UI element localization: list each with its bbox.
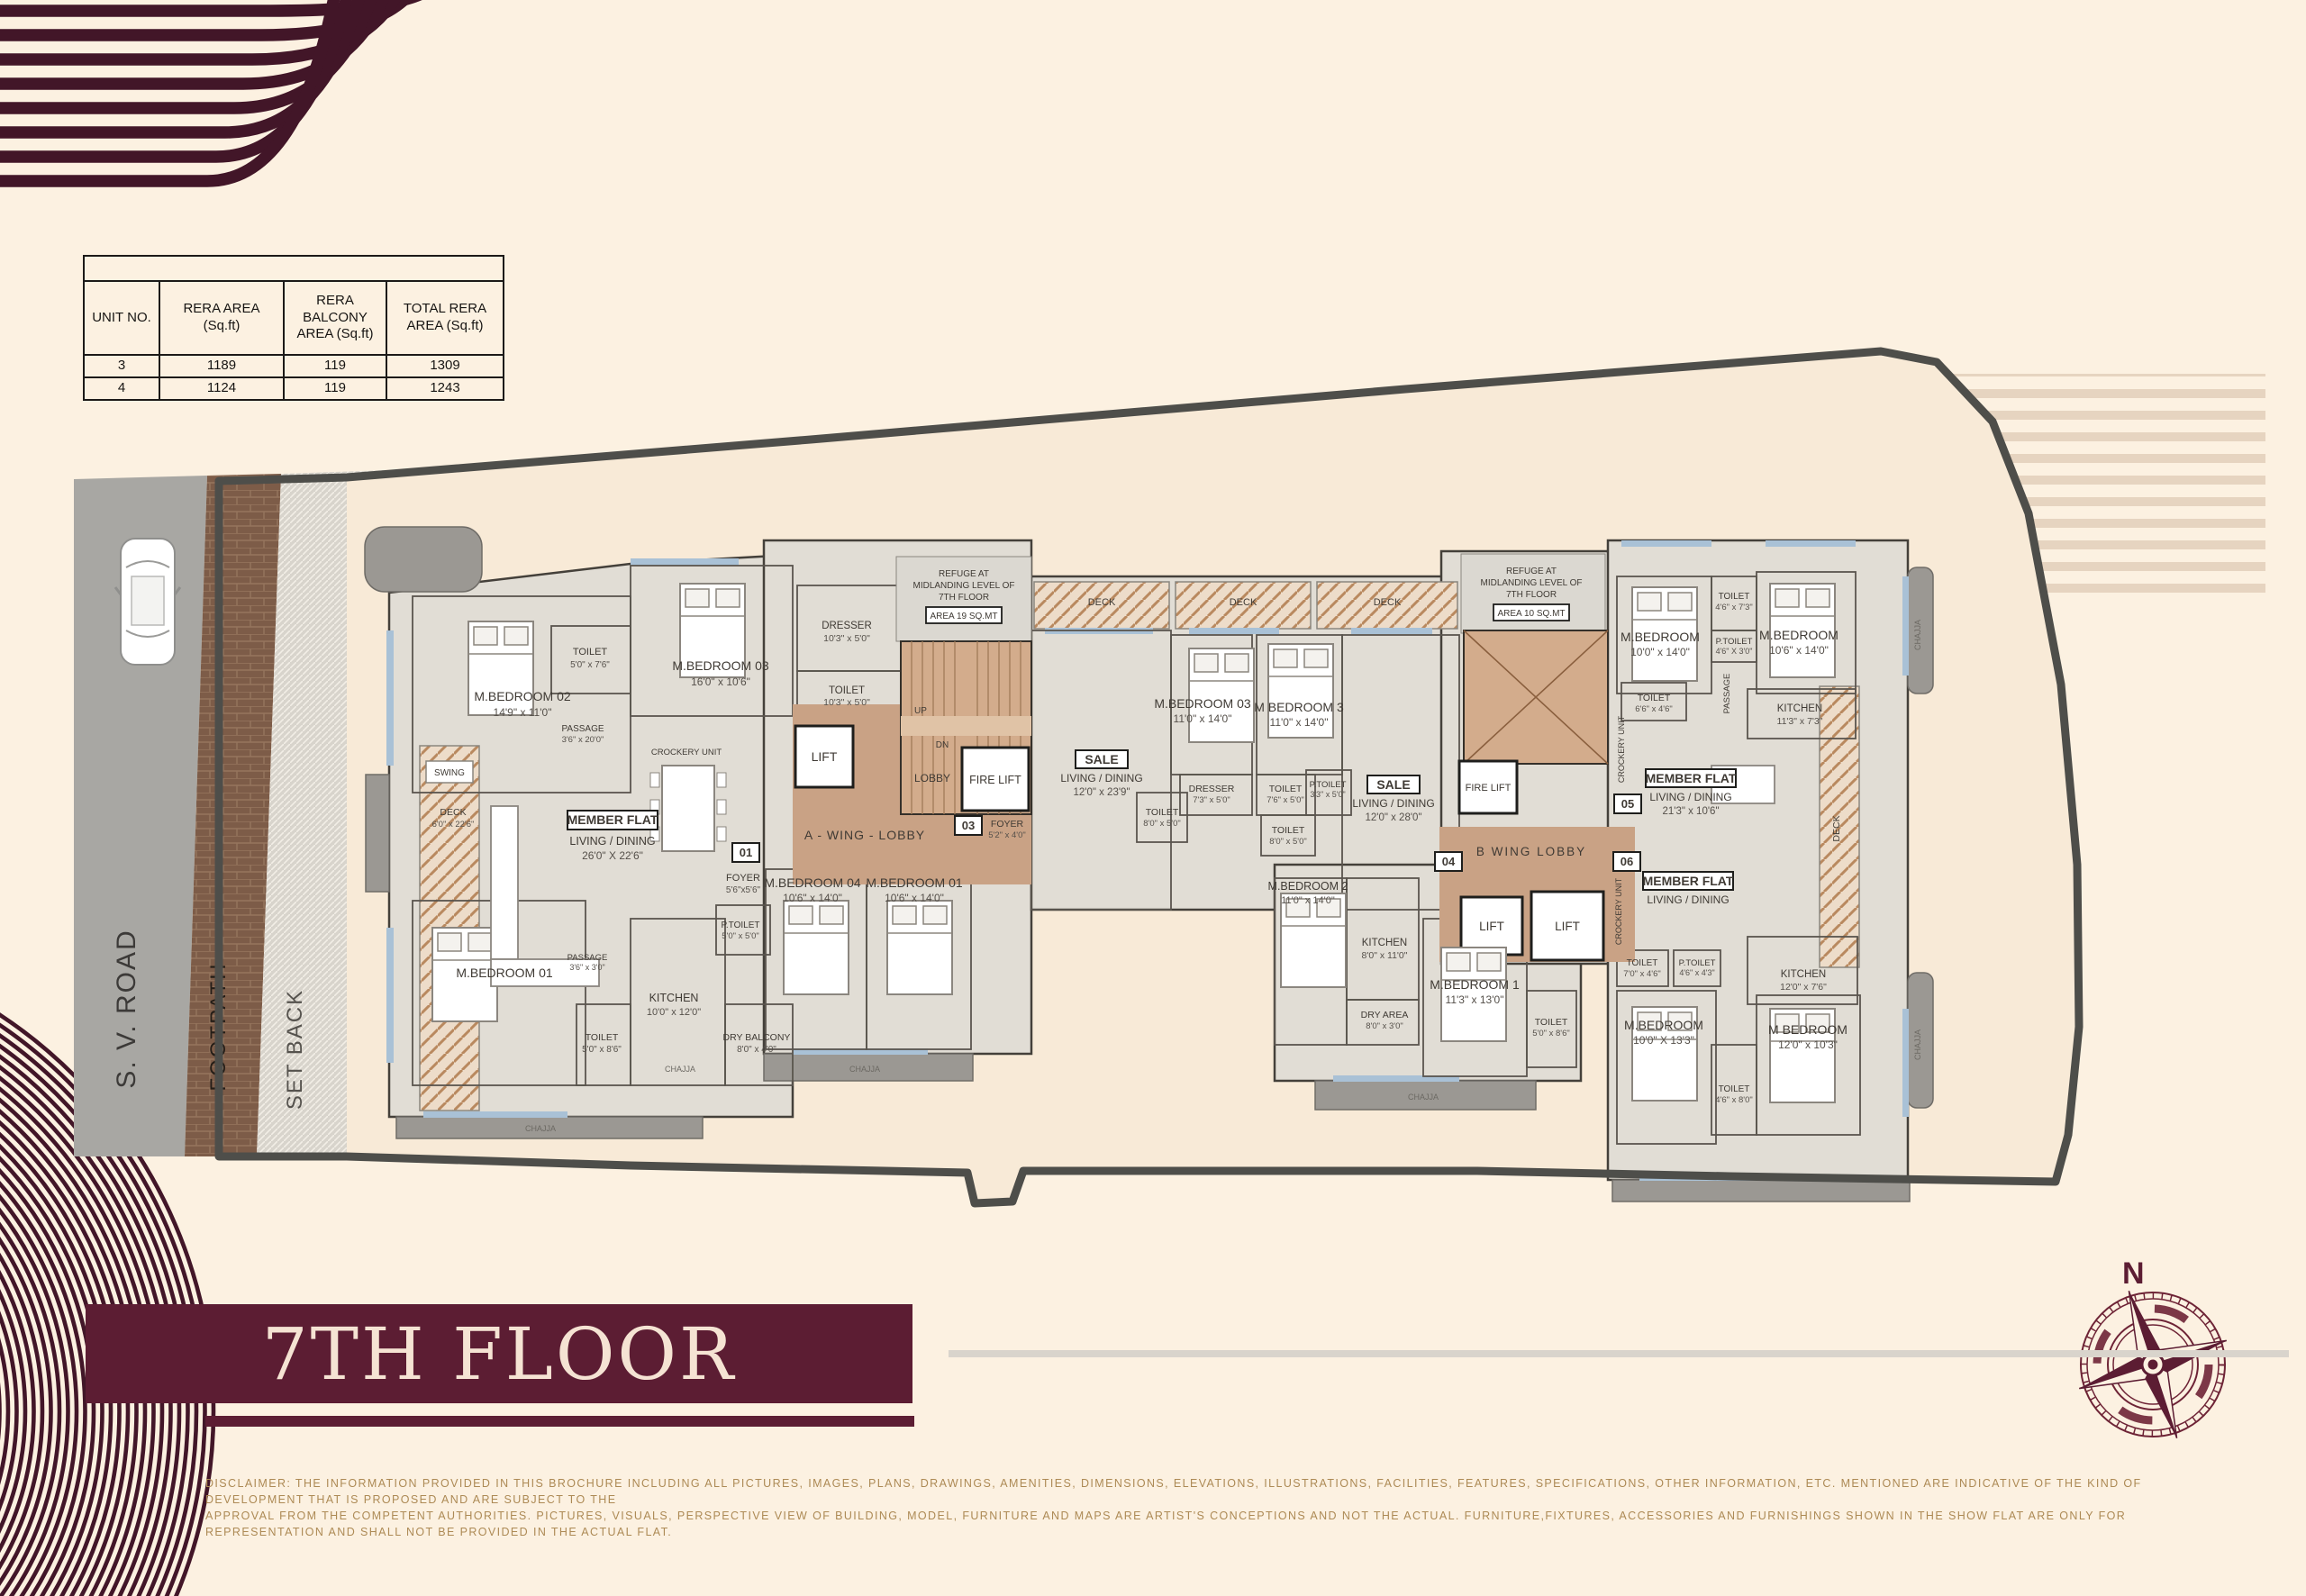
svg-text:TOILET: TOILET <box>829 685 865 696</box>
svg-text:8'0" x 11'0": 8'0" x 11'0" <box>1362 950 1408 961</box>
svg-text:TOILET: TOILET <box>1719 1084 1750 1094</box>
svg-text:3'3" x 5'0": 3'3" x 5'0" <box>1310 790 1345 799</box>
svg-text:P.TOILET: P.TOILET <box>1716 637 1753 647</box>
svg-text:5'0" x 8'6": 5'0" x 8'6" <box>1532 1029 1570 1038</box>
room-label-mbed01-left: M.BEDROOM 01 <box>456 966 553 980</box>
svg-text:FOYER: FOYER <box>991 819 1024 830</box>
svg-text:4'6" x 4'3": 4'6" x 4'3" <box>1679 968 1714 977</box>
svg-text:DECK: DECK <box>1374 597 1402 608</box>
unit-box-01: 01 <box>740 846 752 859</box>
cell-rera-area: 1124 <box>159 377 284 400</box>
svg-text:11'3" x 13'0": 11'3" x 13'0" <box>1446 993 1504 1006</box>
svg-text:16'0" x 10'6": 16'0" x 10'6" <box>691 676 750 688</box>
table-top-empty-row <box>84 256 504 281</box>
svg-text:8'0" x 3'0": 8'0" x 3'0" <box>1366 1021 1403 1031</box>
table-header-row: UNIT NO. RERA AREA (Sq.ft) RERA BALCONY … <box>84 281 504 355</box>
svg-text:DECK: DECK <box>1230 597 1257 608</box>
svg-text:KITCHEN: KITCHEN <box>649 992 699 1004</box>
svg-text:M.BEDROOM 01: M.BEDROOM 01 <box>866 875 963 890</box>
sale-box-04: SALE <box>1376 777 1410 792</box>
svg-text:LIVING / DINING: LIVING / DINING <box>1647 893 1729 906</box>
svg-text:LIVING / DINING: LIVING / DINING <box>1060 772 1142 784</box>
svg-text:PASSAGE: PASSAGE <box>561 724 604 734</box>
svg-text:LIFT: LIFT <box>1479 920 1504 933</box>
unit-box-04: 04 <box>1442 855 1456 868</box>
svg-text:TOILET: TOILET <box>1638 693 1671 703</box>
member-flat-box-05: MEMBER FLAT <box>1646 771 1737 785</box>
svg-text:TOILET: TOILET <box>1719 592 1750 602</box>
svg-text:11'0" x 14'0": 11'0" x 14'0" <box>1174 712 1232 725</box>
page-title: 7TH FLOOR <box>262 1312 737 1396</box>
svg-text:UP: UP <box>914 706 927 716</box>
col-header-rera-balcony-area: RERA BALCONY AREA (Sq.ft) <box>284 281 386 355</box>
compass-rose: N <box>2056 1256 2251 1462</box>
a-wing-lobby-label: A - WING - LOBBY <box>804 828 925 842</box>
svg-text:CHAJJA: CHAJJA <box>1913 620 1922 650</box>
svg-text:21'3" x 10'6": 21'3" x 10'6" <box>1662 806 1719 817</box>
svg-text:7TH FLOOR: 7TH FLOOR <box>1506 590 1557 600</box>
svg-text:LOBBY: LOBBY <box>914 772 950 784</box>
crockery-label-left: CROCKERY UNIT <box>651 748 722 757</box>
svg-text:M.BEDROOM 2: M.BEDROOM 2 <box>1268 880 1348 893</box>
svg-text:FOYER: FOYER <box>726 873 760 884</box>
sale-box-03: SALE <box>1085 752 1118 766</box>
svg-text:DRY BALCONY: DRY BALCONY <box>723 1032 791 1043</box>
svg-text:M.BEDROOM 1: M.BEDROOM 1 <box>1430 977 1520 992</box>
col-header-unit-no: UNIT NO. <box>84 281 159 355</box>
svg-text:PASSAGE: PASSAGE <box>1722 674 1732 714</box>
svg-text:DRY AREA: DRY AREA <box>1361 1010 1409 1020</box>
svg-text:M.BEDROOM: M.BEDROOM <box>1621 630 1700 644</box>
decor-top-left-lines <box>0 0 423 181</box>
svg-text:LIVING / DINING: LIVING / DINING <box>569 835 655 848</box>
svg-text:DRESSER: DRESSER <box>1189 784 1235 794</box>
svg-text:LIVING / DINING: LIVING / DINING <box>1649 791 1731 803</box>
svg-text:M.BEDROOM: M.BEDROOM <box>1624 1018 1703 1032</box>
room-label-mbed03-left: M.BEDROOM 03 <box>672 658 769 673</box>
north-label: N <box>2122 1256 2145 1291</box>
banner-underline-bar <box>205 1416 914 1427</box>
svg-text:5'6"x5'6": 5'6"x5'6" <box>726 885 761 895</box>
room-label-mbed02: M.BEDROOM 02 <box>474 689 571 703</box>
disclaimer-text: DISCLAIMER: THE INFORMATION PROVIDED IN … <box>205 1475 2169 1540</box>
svg-text:PASSAGE: PASSAGE <box>567 953 608 963</box>
rera-area-table: UNIT NO. RERA AREA (Sq.ft) RERA BALCONY … <box>83 255 504 401</box>
svg-text:8'0" x 5'0": 8'0" x 5'0" <box>1143 819 1181 829</box>
svg-text:5'0" x 8'6": 5'0" x 8'6" <box>582 1045 622 1055</box>
horizontal-divider-line <box>949 1350 2289 1357</box>
svg-text:CROCKERY UNIT: CROCKERY UNIT <box>1617 715 1626 783</box>
svg-text:11'0" x 14'0": 11'0" x 14'0" <box>1281 895 1335 906</box>
svg-text:P.TOILET: P.TOILET <box>722 920 760 930</box>
svg-text:10'6" x 14'0": 10'6" x 14'0" <box>885 892 944 904</box>
svg-text:4'6" x 7'3": 4'6" x 7'3" <box>1715 603 1753 612</box>
svg-text:10'3" x 5'0": 10'3" x 5'0" <box>823 633 870 644</box>
fire-lift-a-label: FIRE LIFT <box>969 774 1021 786</box>
svg-text:26'0" X 22'6": 26'0" X 22'6" <box>582 849 643 862</box>
unit-box-05: 05 <box>1621 797 1634 811</box>
svg-text:TOILET: TOILET <box>586 1032 619 1043</box>
member-flat-box-06: MEMBER FLAT <box>1643 874 1734 888</box>
svg-text:KITCHEN: KITCHEN <box>1781 969 1826 980</box>
svg-text:10'0" x 12'0": 10'0" x 12'0" <box>647 1007 701 1018</box>
table-row: 4 1124 119 1243 <box>84 377 504 400</box>
cell-total-area: 1309 <box>386 355 504 377</box>
svg-text:3'6" x 20'0": 3'6" x 20'0" <box>562 735 604 745</box>
svg-text:11'0" x 14'0": 11'0" x 14'0" <box>1270 716 1329 729</box>
svg-text:TOILET: TOILET <box>1269 784 1303 794</box>
svg-text:10'0" x 14'0": 10'0" x 14'0" <box>1630 646 1690 658</box>
cell-balcony-area: 119 <box>284 355 386 377</box>
svg-text:CHAJJA: CHAJJA <box>1408 1093 1439 1102</box>
cell-unit: 3 <box>84 355 159 377</box>
svg-text:8'0" x 4'0": 8'0" x 4'0" <box>737 1045 776 1055</box>
svg-text:P.TOILET: P.TOILET <box>1679 958 1716 968</box>
svg-text:P.TOILET: P.TOILET <box>1310 780 1347 790</box>
svg-text:6'6" x 4'6": 6'6" x 4'6" <box>1635 704 1673 714</box>
svg-text:REFUGE AT: REFUGE AT <box>939 569 989 579</box>
svg-text:12'0" x 10'3": 12'0" x 10'3" <box>1778 1038 1838 1051</box>
cell-rera-area: 1189 <box>159 355 284 377</box>
b-wing-lobby-label: B WING LOBBY <box>1476 845 1586 858</box>
svg-text:M.BEDROOM 04: M.BEDROOM 04 <box>764 875 861 890</box>
svg-text:4'6" x 8'0": 4'6" x 8'0" <box>1715 1095 1753 1105</box>
table-row: 3 1189 119 1309 <box>84 355 504 377</box>
col-header-total-rera-area: TOTAL RERA AREA (Sq.ft) <box>386 281 504 355</box>
svg-text:CHAJJA: CHAJJA <box>665 1065 695 1074</box>
svg-text:8'0" x 5'0": 8'0" x 5'0" <box>1269 837 1307 847</box>
svg-text:MIDLANDING LEVEL OF: MIDLANDING LEVEL OF <box>1481 578 1583 588</box>
col-header-rera-area: RERA AREA (Sq.ft) <box>159 281 284 355</box>
svg-text:10'6" x 14'0": 10'6" x 14'0" <box>1769 644 1829 657</box>
svg-text:5'0" x 5'0": 5'0" x 5'0" <box>722 931 759 941</box>
svg-text:M.BEDROOM: M.BEDROOM <box>1759 628 1838 642</box>
svg-text:11'3" x 7'3": 11'3" x 7'3" <box>1777 716 1823 727</box>
svg-text:DECK: DECK <box>440 807 466 818</box>
road-label: S. V. ROAD <box>112 929 141 1088</box>
svg-text:REFUGE AT: REFUGE AT <box>1506 567 1557 576</box>
svg-text:KITCHEN: KITCHEN <box>1362 938 1407 948</box>
svg-text:AREA 19 SQ.MT: AREA 19 SQ.MT <box>930 612 997 621</box>
svg-text:4'6" X 3'0": 4'6" X 3'0" <box>1716 647 1753 656</box>
svg-text:CROCKERY UNIT: CROCKERY UNIT <box>1614 877 1623 945</box>
disclaimer-line-1: DISCLAIMER: THE INFORMATION PROVIDED IN … <box>205 1475 2169 1508</box>
svg-text:CHAJJA: CHAJJA <box>1913 1029 1922 1060</box>
svg-text:M BEDROOM 3: M BEDROOM 3 <box>1254 700 1344 714</box>
svg-text:10'0" X 13'3": 10'0" X 13'3" <box>1633 1034 1694 1047</box>
swing-label: SWING <box>434 768 465 778</box>
svg-text:LIFT: LIFT <box>1555 920 1580 933</box>
svg-text:DECK: DECK <box>1831 815 1842 841</box>
svg-text:KITCHEN: KITCHEN <box>1777 703 1822 714</box>
svg-text:DECK: DECK <box>1088 597 1116 608</box>
svg-text:TOILET: TOILET <box>1535 1017 1568 1028</box>
svg-text:TOILET: TOILET <box>1272 825 1305 836</box>
cell-unit: 4 <box>84 377 159 400</box>
lift-a-label: LIFT <box>812 749 838 764</box>
svg-text:TOILET: TOILET <box>1627 958 1658 968</box>
svg-text:10'3" x 5'0": 10'3" x 5'0" <box>823 697 870 708</box>
svg-text:6'0" x 22'6": 6'0" x 22'6" <box>432 820 475 830</box>
disclaimer-line-2: APPROVAL FROM THE COMPETENT AUTHORITIES.… <box>205 1508 2169 1540</box>
unit-box-03: 03 <box>962 819 975 832</box>
svg-text:7'0" x 4'6": 7'0" x 4'6" <box>1623 969 1661 979</box>
svg-text:CHAJJA: CHAJJA <box>525 1124 556 1133</box>
fire-lift-b-label: FIRE LIFT <box>1466 783 1512 793</box>
svg-text:7'6" x 5'0": 7'6" x 5'0" <box>1266 795 1304 805</box>
car-icon <box>115 539 180 665</box>
svg-text:CHAJJA: CHAJJA <box>849 1065 880 1074</box>
svg-text:MIDLANDING LEVEL OF: MIDLANDING LEVEL OF <box>913 581 1015 591</box>
svg-text:5'2" x 4'0": 5'2" x 4'0" <box>988 830 1026 840</box>
unit-box-06: 06 <box>1621 855 1633 868</box>
svg-text:10'6" x 14'0": 10'6" x 14'0" <box>783 892 842 904</box>
svg-text:5'0" x 7'6": 5'0" x 7'6" <box>570 660 610 670</box>
svg-text:M.BEDROOM 03: M.BEDROOM 03 <box>1154 696 1251 711</box>
svg-text:12'0" x 28'0": 12'0" x 28'0" <box>1365 812 1421 823</box>
svg-text:14'9" x 11'0": 14'9" x 11'0" <box>494 706 552 719</box>
cell-total-area: 1243 <box>386 377 504 400</box>
svg-text:DRESSER: DRESSER <box>822 621 872 631</box>
svg-text:LIVING / DINING: LIVING / DINING <box>1352 797 1434 810</box>
setback-label: SET BACK <box>283 989 307 1110</box>
svg-text:DN: DN <box>936 740 949 750</box>
floor-title-banner: 7TH FLOOR <box>86 1304 912 1403</box>
svg-text:AREA 10 SQ.MT: AREA 10 SQ.MT <box>1497 609 1565 619</box>
svg-text:TOILET: TOILET <box>573 647 608 657</box>
svg-text:7'3" x 5'0": 7'3" x 5'0" <box>1193 795 1230 805</box>
cell-balcony-area: 119 <box>284 377 386 400</box>
svg-text:12'0" x 23'9": 12'0" x 23'9" <box>1073 787 1130 798</box>
svg-text:M BEDROOM: M BEDROOM <box>1768 1022 1848 1037</box>
svg-text:12'0" x 7'6": 12'0" x 7'6" <box>1780 982 1827 993</box>
svg-text:TOILET: TOILET <box>1146 807 1179 818</box>
member-flat-box-01: MEMBER FLAT <box>567 812 658 827</box>
road-band: S. V. ROAD FOOTPATH SET BACK <box>74 470 387 1156</box>
svg-text:7TH FLOOR: 7TH FLOOR <box>939 593 989 603</box>
svg-text:3'6" x 3'0": 3'6" x 3'0" <box>569 963 604 972</box>
